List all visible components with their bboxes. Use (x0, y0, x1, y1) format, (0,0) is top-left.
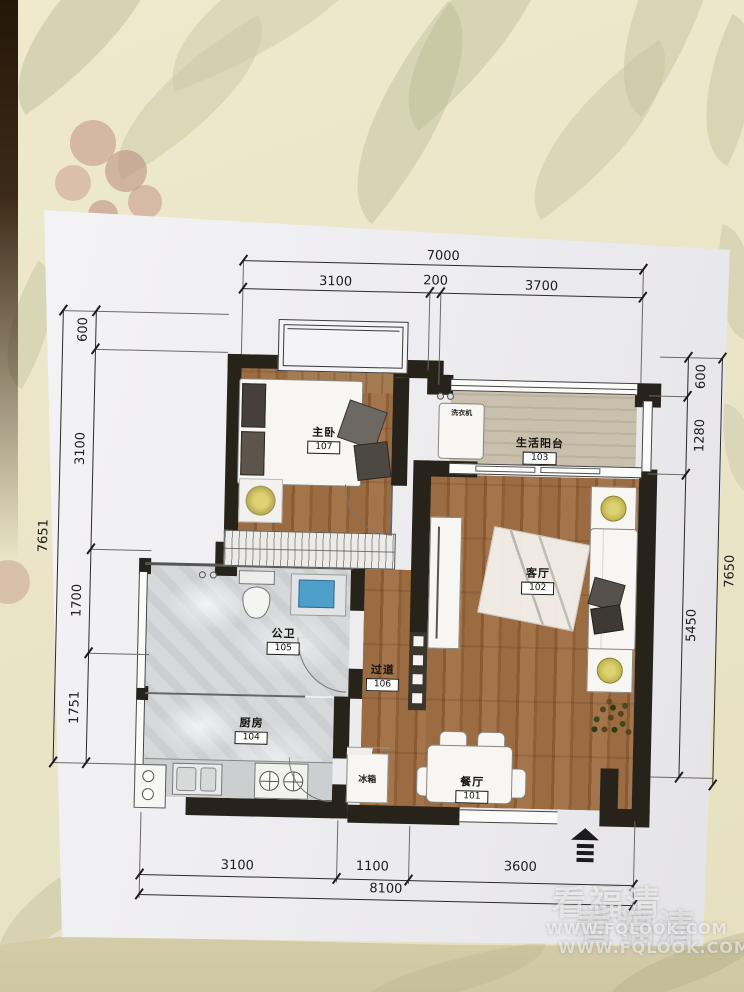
dim-bottom-overall: 8100 (369, 881, 402, 897)
armchair (354, 441, 392, 481)
fridge: 冰箱 (346, 753, 389, 804)
sink-bowl (200, 767, 217, 791)
wall (185, 797, 333, 818)
dim-top-seg2: 200 (423, 273, 448, 289)
side-table (590, 486, 637, 531)
room-label-bathroom: 公卫 105 (267, 625, 301, 656)
wall (350, 567, 365, 611)
entry-arrow-head (571, 828, 599, 841)
lamp (597, 657, 624, 684)
partition-square (413, 655, 423, 665)
partition-square (413, 636, 423, 646)
wallpaper-berry (0, 560, 30, 604)
room-label-dining: 餐厅 101 (455, 773, 489, 804)
wallpaper-berry (128, 185, 162, 219)
dim-left-seg4: 1751 (67, 691, 83, 724)
bedroom-door-leaf (390, 486, 393, 536)
washer-circles (437, 393, 444, 400)
room-number: 105 (267, 642, 300, 656)
bed-pillow (241, 383, 266, 428)
room-name: 客厅 (526, 565, 550, 582)
wall-entry (599, 808, 649, 827)
wallpaper-leaf (495, 40, 705, 220)
wardrobe (223, 530, 396, 570)
room-label-living: 客厅 102 (521, 565, 555, 596)
side-table (586, 648, 633, 693)
wall (347, 805, 459, 826)
dim-top-seg3: 3700 (525, 279, 558, 295)
dim-ext (90, 549, 151, 551)
dim-right-seg1: 600 (694, 364, 710, 389)
wall (348, 669, 363, 699)
dim-left-seg3: 1700 (69, 584, 85, 617)
dim-ext (241, 260, 244, 354)
dim-top-overall: 7000 (426, 248, 459, 264)
room-name: 生活阳台 (516, 434, 564, 451)
dim-right-seg3: 5450 (684, 609, 700, 642)
partition-square (412, 693, 422, 703)
dim-bottom-seg3: 3600 (504, 859, 537, 875)
room-name: 厨房 (239, 714, 263, 731)
sink-basin (298, 580, 335, 609)
room-label-corridor: 过道 106 (366, 661, 400, 692)
room-number: 106 (366, 678, 399, 692)
sink-bowl (176, 767, 197, 791)
dim-bottom-seg1: 3100 (221, 858, 254, 874)
room-number: 104 (234, 731, 267, 745)
photo-scene: 洗衣机 (0, 0, 744, 992)
bay-window (278, 319, 409, 374)
fridge-fold-line (347, 747, 389, 756)
dim-ext (139, 812, 142, 898)
dim-left-seg2: 3100 (73, 432, 89, 465)
entry-arrow-bar (577, 844, 594, 848)
room-name: 餐厅 (460, 773, 484, 790)
dim-right-seg2: 1280 (692, 419, 708, 452)
room-name: 公卫 (271, 625, 295, 642)
fridge-label: 冰箱 (358, 771, 376, 784)
room-number: 101 (455, 790, 488, 804)
entry-arrow-bar (576, 858, 593, 862)
dim-top-seg1: 3100 (319, 274, 352, 290)
wall (391, 378, 409, 486)
room-label-bedroom: 主卧 107 (307, 424, 341, 455)
bed-pillow (240, 431, 265, 476)
watermark-site: WWW.FQLOOK.COM (558, 938, 744, 957)
room-label-balcony: 生活阳台 103 (515, 434, 564, 465)
dim-left-overall: 7651 (36, 519, 52, 552)
room-number: 102 (521, 582, 554, 596)
bay-window-inner-line (287, 328, 400, 365)
washing-machine: 洗衣机 (438, 403, 485, 460)
dim-ext (88, 653, 149, 655)
dim-line (53, 310, 64, 762)
balcony-side-wall (641, 401, 653, 471)
dim-right-overall: 7650 (722, 555, 738, 588)
table-edge-shadow (0, 0, 18, 560)
room-number: 103 (523, 452, 556, 466)
entry-threshold (459, 809, 557, 824)
dim-left-seg1: 600 (76, 317, 92, 342)
sofa-cushion (590, 604, 624, 634)
tv-panel (427, 516, 462, 649)
wallpaper-berry (55, 165, 91, 201)
room-label-kitchen: 厨房 104 (234, 714, 268, 745)
dim-ext (428, 292, 431, 370)
floorplan: 洗衣机 (25, 240, 661, 954)
room-number: 107 (307, 441, 340, 455)
room-name: 过道 (371, 661, 395, 678)
watermark-site: WWW.FQLOOK.COM (546, 920, 728, 938)
dim-ext (95, 349, 228, 353)
dim-line (86, 311, 97, 763)
lamp (600, 495, 627, 522)
dim-ext (53, 762, 147, 765)
dim-bottom-seg2: 1100 (356, 859, 389, 875)
room-name: 主卧 (312, 424, 336, 441)
dim-ext (63, 310, 229, 315)
washer-label: 洗衣机 (451, 408, 472, 418)
toilet-tank (239, 570, 275, 585)
dim-ext (640, 269, 644, 383)
entry-arrow-bar (577, 851, 594, 855)
partition-square (412, 674, 422, 684)
